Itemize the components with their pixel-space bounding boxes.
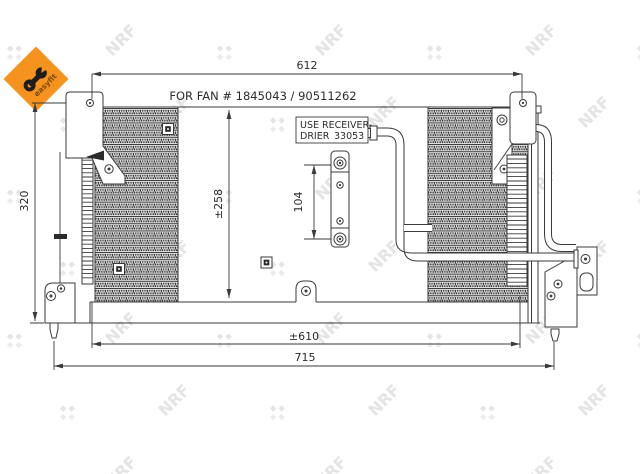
left-coil-strip	[82, 152, 93, 284]
receiver-drier-coil	[507, 155, 527, 286]
dimension-610: ±610	[92, 296, 520, 348]
watermark-logo-mark	[213, 329, 236, 352]
right-fitting-block	[574, 247, 597, 295]
clip-fastener-icon	[114, 264, 125, 275]
dim-label-610: ±610	[289, 330, 319, 343]
watermark-logo-mark	[423, 329, 446, 352]
receiver-note-part: 33053	[334, 131, 364, 142]
fitting-slot	[580, 273, 593, 291]
watermark-text: NRF	[101, 308, 140, 347]
mounting-bracket-bottom-left	[45, 283, 75, 338]
watermark-text: NRF	[364, 380, 403, 419]
arrowhead	[227, 289, 232, 298]
watermark-logo-mark	[56, 401, 79, 424]
watermark-logo-mark	[633, 329, 640, 352]
watermark-text: NRF	[521, 452, 560, 474]
arrowhead	[92, 72, 101, 77]
watermark-text: NRF	[311, 452, 350, 474]
dim-label-612: 612	[297, 59, 318, 72]
arrowhead	[92, 342, 101, 347]
fan-note-text: FOR FAN # 1845043 / 90511262	[169, 89, 356, 103]
watermark-logo-mark	[3, 329, 26, 352]
watermark-logo-mark	[213, 41, 236, 64]
arrowhead	[312, 230, 317, 239]
arrowhead	[511, 342, 520, 347]
easyfit-logo: easyfit	[3, 46, 68, 111]
watermark-text: NRF	[311, 20, 350, 59]
arrowhead	[513, 72, 522, 77]
receiver-note-line2: DRIER	[300, 131, 330, 142]
watermark-logo-mark	[423, 41, 446, 64]
condenser-technical-drawing: NRFNRFNRFNRFNRFNRFNRFNRFNRFNRFNRFNRFNRFN…	[0, 0, 640, 474]
watermark-logo-mark	[633, 185, 640, 208]
arrowhead	[54, 364, 63, 369]
bracket-nub	[536, 106, 541, 113]
arrowhead	[227, 110, 232, 119]
watermark-logo-mark	[56, 257, 79, 280]
watermark-logo-mark	[266, 113, 289, 136]
dim-label-258: ±258	[212, 189, 225, 219]
dimension-715: 715	[54, 341, 554, 370]
technical-drawing-page: NRFNRFNRFNRFNRFNRFNRFNRFNRFNRFNRFNRFNRFN…	[0, 0, 640, 474]
watermark-text: NRF	[154, 380, 193, 419]
receiver-note-line1: USE RECEIVER-	[300, 120, 372, 131]
watermark-logo-mark	[266, 401, 289, 424]
dim-label-320: 320	[18, 191, 31, 212]
bottom-plate-lines	[75, 302, 540, 323]
clip-fastener-icon	[163, 124, 174, 135]
arrowhead	[33, 312, 38, 321]
clip-fastener-icon	[261, 257, 272, 268]
dim-label-104: 104	[292, 192, 305, 213]
watermark-text: NRF	[574, 92, 613, 131]
bottom-center-tab	[296, 281, 316, 302]
fitting-flange	[574, 250, 578, 268]
watermark-logo-mark	[633, 41, 640, 64]
watermark-text: NRF	[574, 380, 613, 419]
condenser-core-left	[95, 107, 178, 302]
watermark-logo-mark	[476, 401, 499, 424]
watermark-text: NRF	[101, 452, 140, 474]
receiver-drier-note-box: USE RECEIVER- DRIER 33053	[296, 117, 372, 143]
arrowhead	[545, 364, 554, 369]
watermark-text: NRF	[521, 20, 560, 59]
left-datum-tick	[54, 234, 67, 239]
center-bracket-plate	[331, 151, 349, 247]
watermark-text: NRF	[101, 20, 140, 59]
locating-pin-left	[50, 323, 58, 338]
arrowhead	[312, 165, 317, 174]
locating-pin-right	[551, 329, 559, 341]
dim-label-715: 715	[295, 351, 316, 364]
